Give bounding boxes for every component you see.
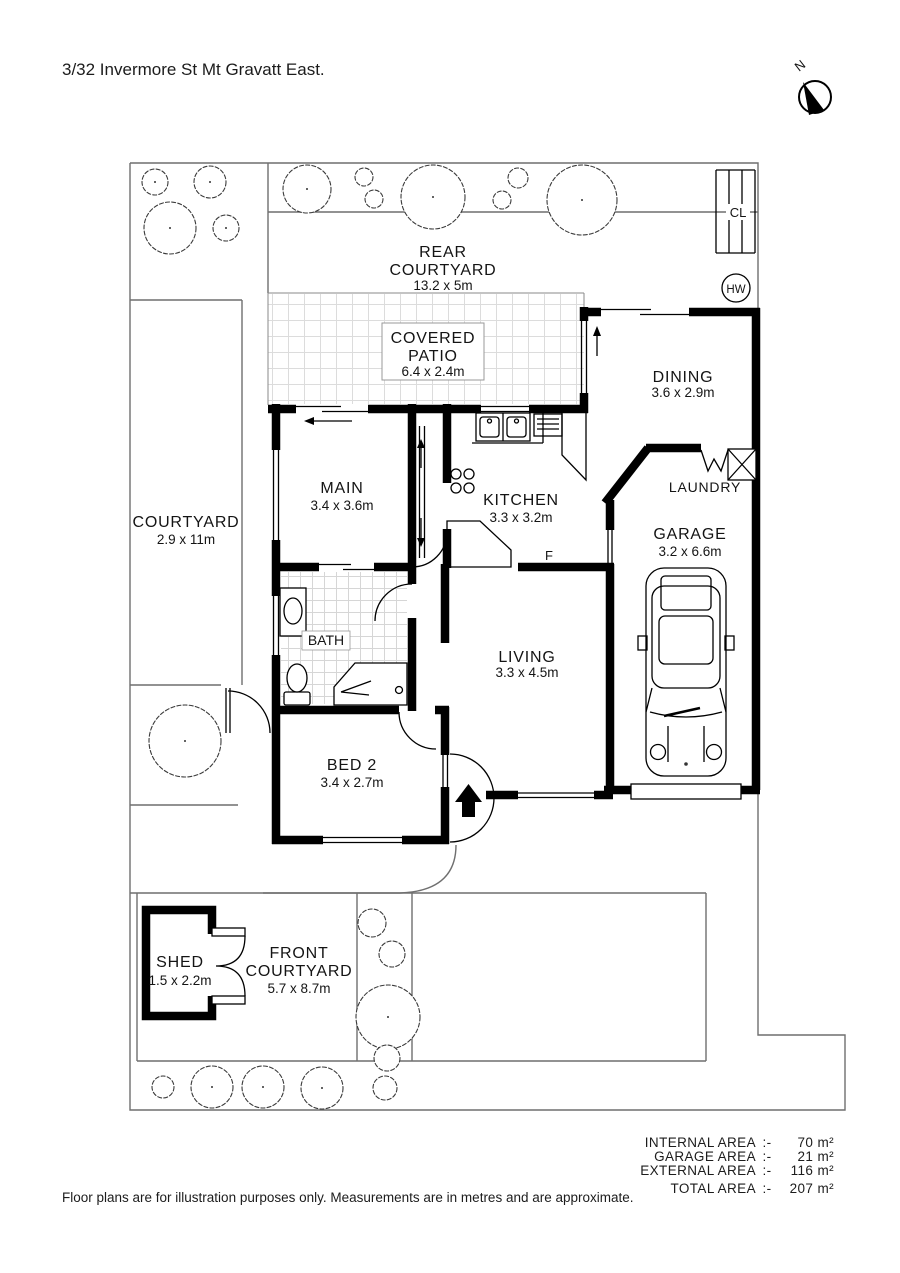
- tree-icon: [379, 941, 405, 967]
- tree-icon: [358, 909, 386, 937]
- svg-text:3.3 x 4.5m: 3.3 x 4.5m: [495, 665, 558, 680]
- north-label: N: [792, 57, 809, 75]
- tree-icon: [493, 191, 511, 209]
- bed2-label: BED 2: [327, 757, 377, 774]
- area-label: EXTERNAL AREA: [586, 1164, 756, 1178]
- dining-label: DINING: [653, 369, 714, 386]
- floor-plan-page: 3/32 Invermore St Mt Gravatt East.: [0, 0, 900, 1273]
- table-row: GARAGE AREA :- 21 m²: [586, 1150, 834, 1164]
- area-summary-table: INTERNAL AREA :- 70 m² GARAGE AREA :- 21…: [586, 1136, 834, 1196]
- svg-text:2.9 x 11m: 2.9 x 11m: [157, 532, 215, 547]
- main-robe: [417, 426, 425, 558]
- car-icon: [638, 568, 734, 776]
- entry-arrow-icon: [455, 784, 482, 817]
- svg-text:PATIO: PATIO: [408, 348, 458, 365]
- area-value: 116 m²: [778, 1164, 834, 1178]
- area-label: INTERNAL AREA: [586, 1136, 756, 1150]
- covered-patio-label: COVERED PATIO 6.4 x 2.4m: [382, 323, 484, 380]
- svg-text:COVERED: COVERED: [391, 330, 476, 347]
- area-value: 70 m²: [778, 1136, 834, 1150]
- svg-text:3.4 x 3.6m: 3.4 x 3.6m: [310, 498, 373, 513]
- svg-text:1.5 x 2.2m: 1.5 x 2.2m: [148, 973, 211, 988]
- garage-door: [631, 784, 741, 799]
- table-row: INTERNAL AREA :- 70 m²: [586, 1136, 834, 1150]
- tree-icon: [365, 190, 383, 208]
- svg-text:3.4 x 2.7m: 3.4 x 2.7m: [320, 775, 383, 790]
- svg-text:3.3 x 3.2m: 3.3 x 3.2m: [489, 510, 552, 525]
- table-row: EXTERNAL AREA :- 116 m²: [586, 1164, 834, 1178]
- shed-label: SHED: [156, 954, 204, 971]
- svg-text:3.2 x 6.6m: 3.2 x 6.6m: [658, 544, 721, 559]
- kitchen-fixtures: F: [447, 413, 586, 567]
- area-value: 21 m²: [778, 1150, 834, 1164]
- svg-text:13.2 x 5m: 13.2 x 5m: [413, 278, 472, 293]
- svg-text:COURTYARD: COURTYARD: [389, 262, 496, 279]
- area-label: GARAGE AREA: [586, 1150, 756, 1164]
- tree-icon: [508, 168, 528, 188]
- area-value: 207 m²: [778, 1182, 834, 1196]
- garage-label: GARAGE: [653, 526, 726, 543]
- bath-label: BATH: [308, 632, 344, 648]
- clothesline-label: CL: [730, 205, 747, 220]
- north-compass-icon: N: [792, 57, 831, 115]
- disclaimer-text: Floor plans are for illustration purpose…: [62, 1190, 634, 1205]
- main-label: MAIN: [320, 480, 363, 497]
- rear-courtyard-label: REAR: [419, 244, 467, 261]
- floor-plan-drawing: CL HW N: [0, 0, 900, 1273]
- fridge-label: F: [545, 548, 553, 563]
- kitchen-label: KITCHEN: [483, 492, 559, 509]
- front-courtyard-label: FRONT: [269, 945, 328, 962]
- svg-text:COURTYARD: COURTYARD: [245, 963, 352, 980]
- courtyard-label: COURTYARD: [132, 514, 239, 531]
- tree-icon: [152, 1076, 174, 1098]
- svg-text:5.7 x 8.7m: 5.7 x 8.7m: [267, 981, 330, 996]
- laundry-tub: [728, 449, 756, 480]
- svg-text:3.6 x 2.9m: 3.6 x 2.9m: [651, 385, 714, 400]
- tree-icon: [374, 1045, 400, 1071]
- hot-water-label: HW: [726, 284, 745, 296]
- hot-water-unit: HW: [722, 274, 750, 302]
- tree-icon: [373, 1076, 397, 1100]
- living-label: LIVING: [498, 649, 555, 666]
- tree-icon: [355, 168, 373, 186]
- svg-text:6.4 x 2.4m: 6.4 x 2.4m: [401, 364, 464, 379]
- laundry-label: LAUNDRY: [669, 479, 741, 495]
